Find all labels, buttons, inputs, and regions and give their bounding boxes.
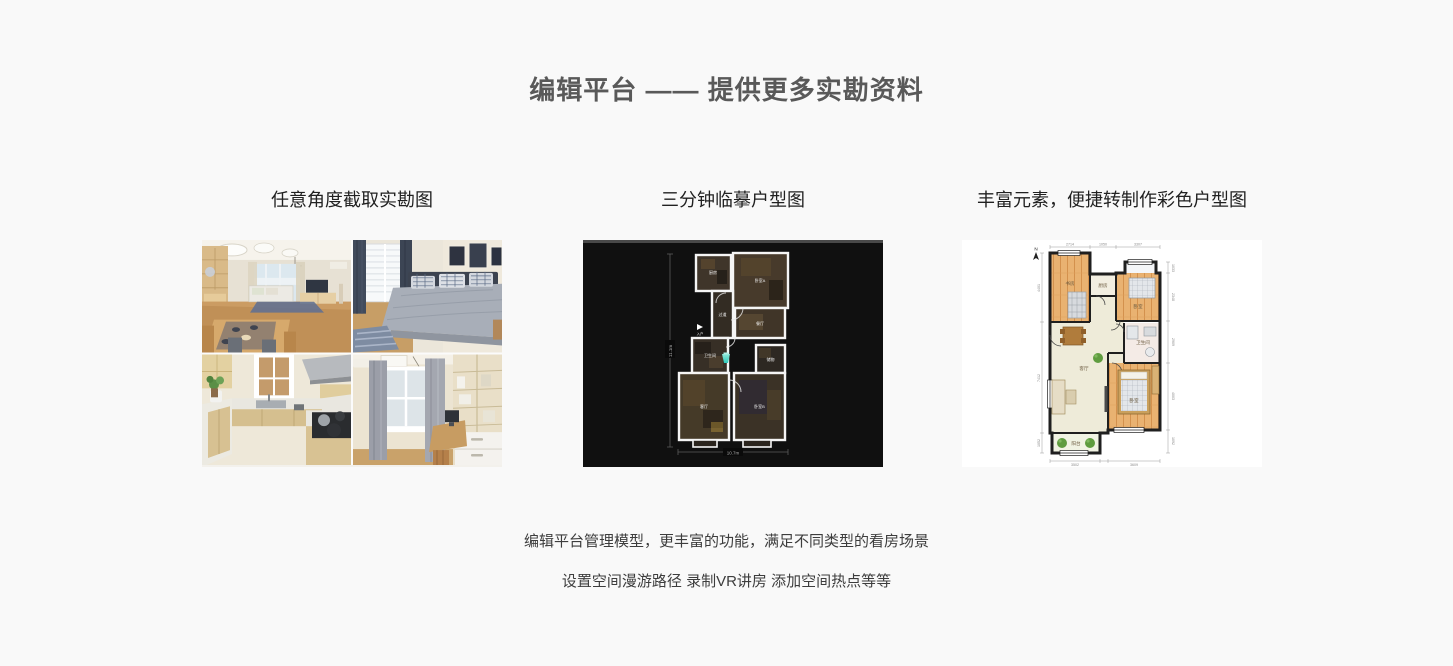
svg-text:储物: 储物	[767, 356, 775, 362]
feature-caption-trace-floorplan: 三分钟临摹户型图	[583, 186, 883, 212]
photo-bedroom	[353, 240, 502, 353]
svg-text:餐厅: 餐厅	[756, 320, 764, 326]
svg-text:客厅: 客厅	[1079, 365, 1089, 372]
feature-caption-screenshot: 任意角度截取实勘图	[202, 186, 502, 212]
svg-text:4401: 4401	[1037, 284, 1041, 292]
page-title: 编辑平台 —— 提供更多实勘资料	[0, 70, 1453, 107]
svg-text:1092: 1092	[1171, 437, 1175, 445]
svg-text:2909: 2909	[1171, 338, 1175, 346]
dark-floorplan-svg: 11.1m 10.7m	[583, 240, 883, 467]
svg-text:1052: 1052	[1037, 439, 1041, 447]
feature-caption-color-floorplan: 丰富元素，便捷转制作彩色户型图	[962, 186, 1262, 212]
photo-kitchen	[202, 354, 351, 467]
svg-text:卧室A: 卧室A	[755, 277, 766, 283]
photo-living-room	[202, 240, 351, 353]
footer-description-line-2: 设置空间漫游路径 录制VR讲房 添加空间热点等等	[0, 570, 1453, 591]
svg-text:客厅: 客厅	[700, 403, 708, 409]
photo-study	[353, 354, 502, 467]
photo-montage-svg	[202, 240, 502, 467]
svg-text:过道: 过道	[719, 311, 727, 317]
svg-text:11.1m: 11.1m	[668, 345, 673, 357]
svg-text:10.7m: 10.7m	[727, 451, 740, 456]
interior-photo-grid-image	[202, 240, 502, 467]
svg-text:2348: 2348	[1171, 293, 1175, 301]
svg-text:书房: 书房	[1065, 280, 1075, 287]
svg-text:卫生间: 卫生间	[704, 352, 716, 358]
svg-text:厨房: 厨房	[709, 269, 717, 275]
color-floorplan-svg: N	[962, 240, 1262, 467]
svg-text:3609: 3609	[1130, 463, 1138, 467]
svg-text:阳台: 阳台	[1071, 440, 1081, 447]
footer-description-line-1: 编辑平台管理模型，更丰富的功能，满足不同类型的看房场景	[0, 530, 1453, 551]
svg-text:卧室: 卧室	[1133, 303, 1143, 310]
dark-floorplan-image: 11.1m 10.7m	[583, 240, 883, 467]
svg-text:厨房: 厨房	[1098, 282, 1108, 289]
svg-text:入户: 入户	[697, 331, 704, 336]
svg-text:1033: 1033	[1171, 264, 1175, 272]
svg-text:3502: 3502	[1071, 463, 1079, 467]
svg-text:3307: 3307	[1134, 243, 1142, 247]
svg-text:1050: 1050	[1099, 243, 1107, 247]
svg-text:4003: 4003	[1171, 392, 1175, 400]
svg-text:N: N	[1034, 247, 1037, 252]
svg-text:卫生间: 卫生间	[1136, 339, 1150, 346]
svg-text:卧室B: 卧室B	[754, 403, 765, 409]
photo-grid-seam-horizontal	[202, 353, 502, 355]
svg-text:卧室: 卧室	[1129, 397, 1139, 404]
color-floorplan-image: N	[962, 240, 1262, 467]
svg-text:7412: 7412	[1037, 374, 1041, 382]
svg-text:2714: 2714	[1066, 243, 1074, 247]
page-canvas: 编辑平台 —— 提供更多实勘资料 任意角度截取实勘图 三分钟临摹户型图 丰富元素…	[0, 0, 1453, 666]
